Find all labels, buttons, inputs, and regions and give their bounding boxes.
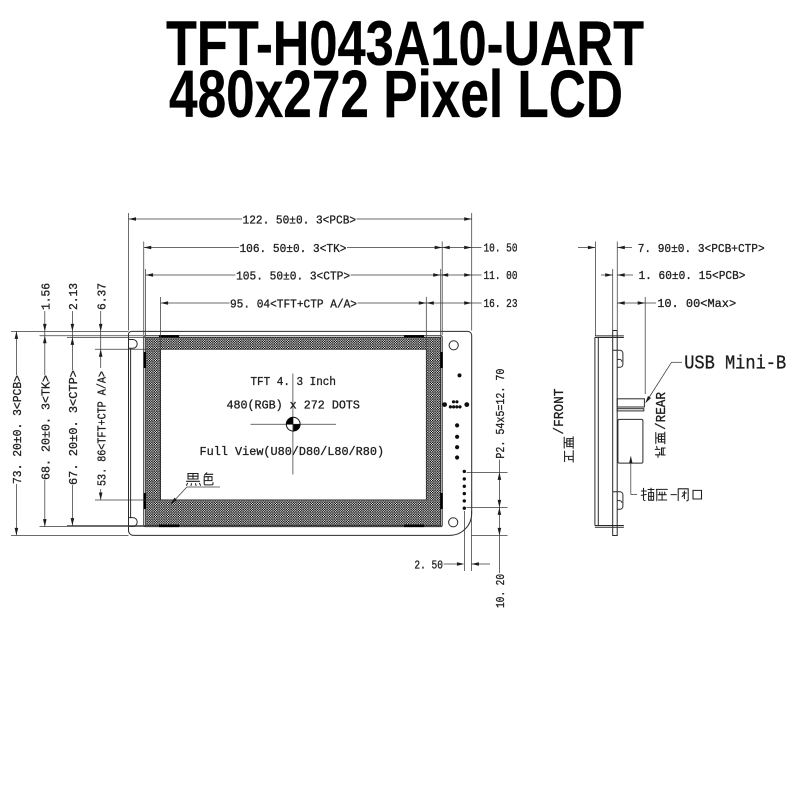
svg-text:7. 90±0. 3<PCB+CTP>: 7. 90±0. 3<PCB+CTP>	[638, 242, 765, 256]
svg-text:10. 20: 10. 20	[494, 574, 508, 608]
svg-text:2. 50: 2. 50	[414, 558, 443, 572]
svg-text:16. 23: 16. 23	[484, 297, 518, 311]
svg-text:67. 20±0. 3<CTP>: 67. 20±0. 3<CTP>	[67, 370, 81, 485]
svg-text:480(RGB) x 272 DOTS: 480(RGB) x 272 DOTS	[226, 399, 360, 413]
svg-text:11. 00: 11. 00	[484, 269, 518, 283]
svg-text:53. 86<TFT+CTP A/A>: 53. 86<TFT+CTP A/A>	[95, 371, 109, 486]
svg-text:USB Mini-B: USB Mini-B	[684, 353, 786, 375]
svg-text:P2. 54x5=12. 70: P2. 54x5=12. 70	[494, 369, 508, 459]
svg-text:6.37: 6.37	[95, 283, 109, 310]
svg-text:1. 60±0. 15<PCB>: 1. 60±0. 15<PCB>	[639, 269, 746, 283]
svg-text:TFT 4. 3 Inch: TFT 4. 3 Inch	[250, 375, 336, 389]
svg-text:10. 50: 10. 50	[484, 242, 518, 256]
svg-text:122. 50±0. 3<PCB>: 122. 50±0. 3<PCB>	[243, 213, 357, 227]
svg-text:10. 00<Max>: 10. 00<Max>	[657, 297, 736, 311]
svg-text:480x272 Pixel LCD: 480x272 Pixel LCD	[169, 57, 623, 132]
svg-text:105. 50±0. 3<CTP>: 105. 50±0. 3<CTP>	[236, 269, 350, 283]
svg-text:1.56: 1.56	[39, 283, 53, 310]
svg-text:73. 20±0. 3<PCB>: 73. 20±0. 3<PCB>	[11, 375, 25, 484]
svg-text:95. 04<TFT+CTP A/A>: 95. 04<TFT+CTP A/A>	[230, 297, 357, 311]
svg-text:68. 20±0. 3<TK>: 68. 20±0. 3<TK>	[39, 375, 53, 480]
svg-text:2.13: 2.13	[67, 283, 81, 310]
svg-text:/REAR: /REAR	[655, 392, 670, 430]
svg-text:Full View(U80/D80/L80/R80): Full View(U80/D80/L80/R80)	[200, 445, 385, 459]
svg-text:/FRONT: /FRONT	[553, 389, 568, 435]
svg-text:106. 50±0. 3<TK>: 106. 50±0. 3<TK>	[240, 242, 347, 256]
